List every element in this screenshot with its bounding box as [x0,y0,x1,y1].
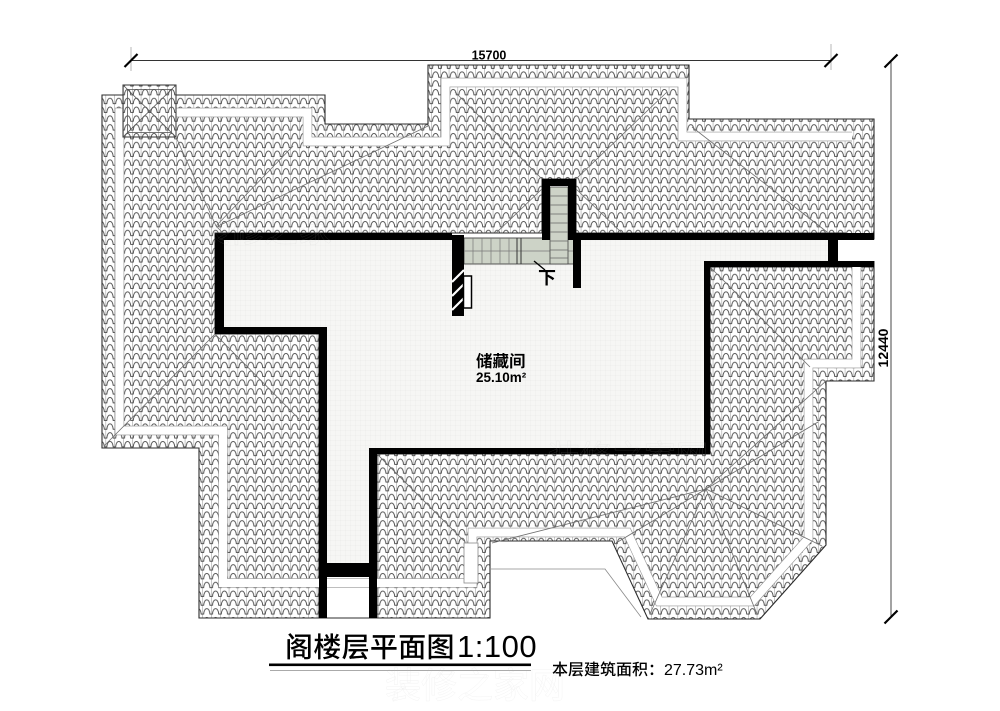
svg-text:25.10m²: 25.10m² [476,370,527,385]
svg-text:27.73m²: 27.73m² [664,662,723,679]
svg-text:15700: 15700 [472,49,507,63]
svg-text:1:100: 1:100 [457,629,537,664]
svg-text:12440: 12440 [875,328,891,367]
